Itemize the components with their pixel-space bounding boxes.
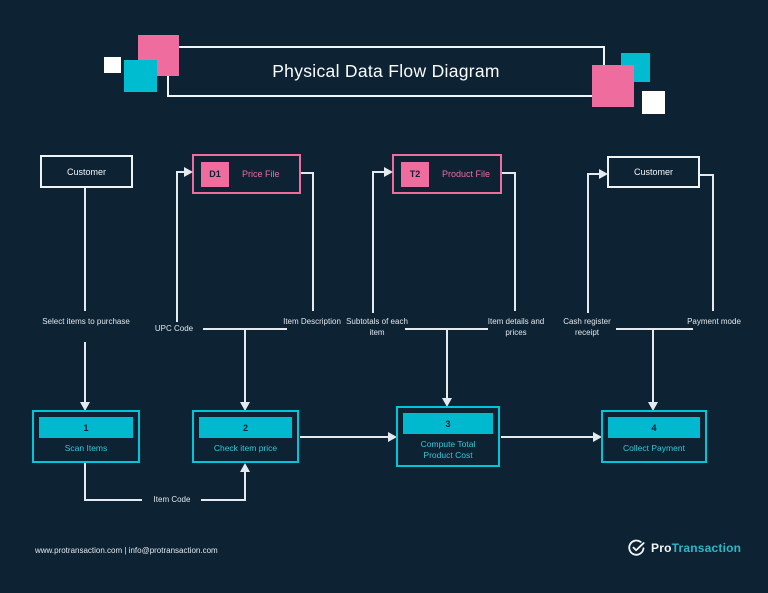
flow-label-upc-code: UPC Code <box>146 323 202 334</box>
connector-line <box>244 471 246 501</box>
connector-line <box>501 436 593 438</box>
connector-line <box>446 328 448 398</box>
connector-line <box>84 499 142 501</box>
arrowhead-right-icon <box>384 167 393 177</box>
connector-line <box>244 328 246 402</box>
connector-line <box>84 188 86 311</box>
connector-line <box>372 171 374 313</box>
process-number-bar: 4 <box>608 417 700 438</box>
connector-line <box>514 172 516 311</box>
flow-label-cash-register: Cash register receipt <box>554 316 620 338</box>
connector-line <box>84 463 86 501</box>
process-label: Scan Items <box>34 443 138 454</box>
brand-logo: ProTransaction <box>627 538 741 557</box>
process-collect-payment: 4 Collect Payment <box>601 410 707 463</box>
dfd-poster: Physical Data Flow Diagram Customer Cust… <box>0 0 768 593</box>
brand-name-transaction: Transaction <box>672 541 742 555</box>
connector-line <box>201 499 246 501</box>
arrowhead-up-icon <box>240 463 250 472</box>
brand-name: ProTransaction <box>651 541 741 555</box>
process-number: 4 <box>651 423 656 433</box>
datastore-id-badge: D1 <box>201 162 229 187</box>
footer-contact: www.protransaction.com | info@protransac… <box>35 546 218 555</box>
process-number-bar: 2 <box>199 417 292 438</box>
connector-line <box>652 328 654 402</box>
process-compute-total: 3 Compute Total Product Cost <box>396 406 500 467</box>
datastore-label: Product File <box>442 169 490 179</box>
entity-label: Customer <box>67 167 106 177</box>
process-check-item-price: 2 Check item price <box>192 410 299 463</box>
flow-label-item-description: Item Description <box>282 316 342 327</box>
datastore-id-badge: T2 <box>401 162 429 187</box>
decor-square-white-right <box>642 91 665 114</box>
decor-square-pink-right <box>592 65 634 107</box>
flow-label-payment-mode: Payment mode <box>684 316 744 327</box>
entity-label: Customer <box>634 167 673 177</box>
connector-line <box>84 342 86 402</box>
flow-label-select-items: Select items to purchase <box>42 316 130 327</box>
decor-square-white-left <box>104 57 121 73</box>
arrowhead-right-icon <box>184 167 193 177</box>
flow-label-item-code: Item Code <box>145 494 199 505</box>
check-circle-icon <box>627 538 646 557</box>
datastore-price-file: D1 Price File <box>192 154 301 194</box>
process-number: 3 <box>445 419 450 429</box>
process-number: 2 <box>243 423 248 433</box>
flow-label-item-details: Item details and prices <box>486 316 546 338</box>
connector-line <box>587 173 599 175</box>
connector-line <box>616 328 693 330</box>
process-label: Collect Payment <box>603 443 705 454</box>
connector-line <box>176 171 178 322</box>
process-number-bar: 3 <box>403 413 493 434</box>
brand-name-pro: Pro <box>651 541 672 555</box>
process-scan-items: 1 Scan Items <box>32 410 140 463</box>
entity-customer-left: Customer <box>40 155 133 188</box>
page-title: Physical Data Flow Diagram <box>272 61 500 82</box>
process-label: Check item price <box>194 443 297 454</box>
connector-line <box>372 171 384 173</box>
flow-label-subtotals: Subtotals of each item <box>343 316 411 338</box>
entity-customer-right: Customer <box>607 156 700 188</box>
connector-line <box>300 436 388 438</box>
connector-line <box>587 173 589 313</box>
process-number: 1 <box>83 423 88 433</box>
decor-square-teal-left <box>124 60 157 92</box>
connector-line <box>312 172 314 311</box>
datastore-label: Price File <box>242 169 280 179</box>
process-label: Compute Total Product Cost <box>398 439 498 461</box>
arrowhead-right-icon <box>599 169 608 179</box>
title-box: Physical Data Flow Diagram <box>167 46 605 97</box>
connector-line <box>712 174 714 311</box>
datastore-product-file: T2 Product File <box>392 154 502 194</box>
process-number-bar: 1 <box>39 417 133 438</box>
